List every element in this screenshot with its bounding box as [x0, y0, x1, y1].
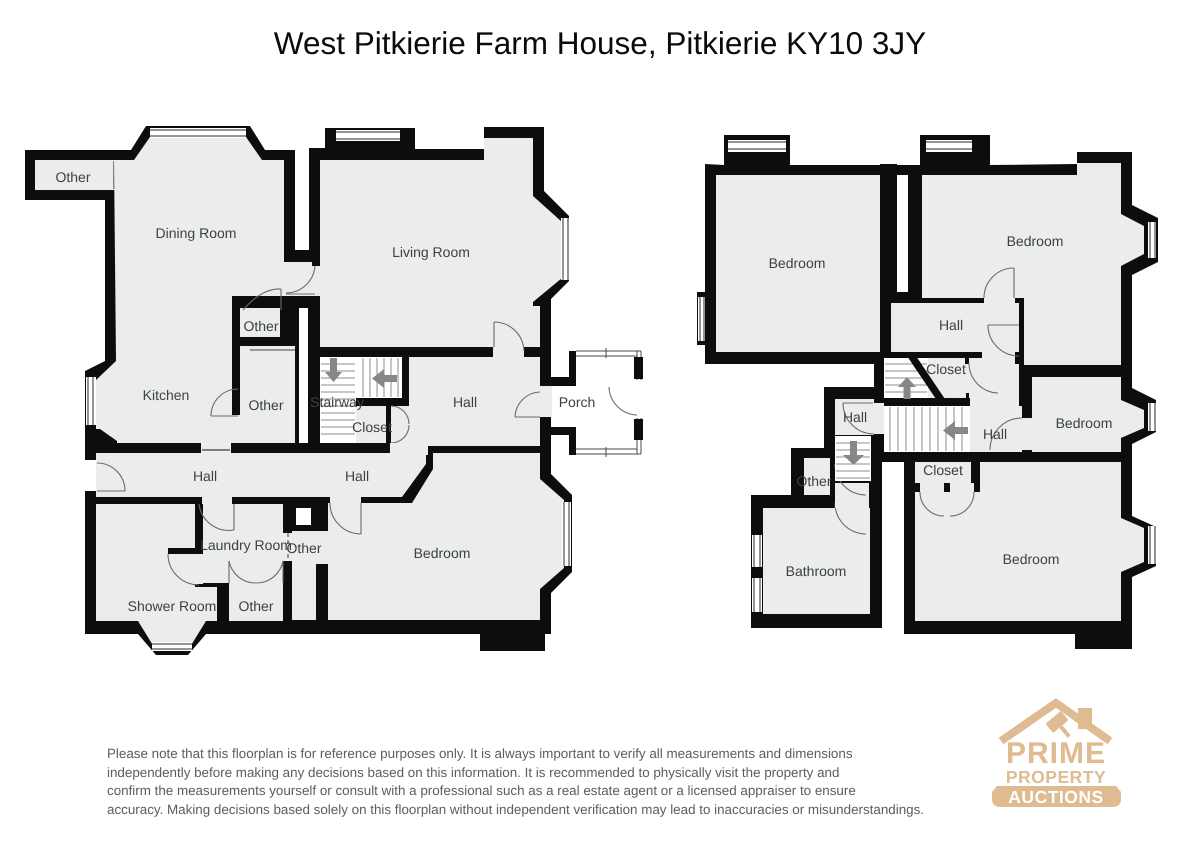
- svg-text:Hall: Hall: [939, 317, 963, 333]
- svg-text:Dining Room: Dining Room: [156, 225, 237, 241]
- svg-text:PROPERTY: PROPERTY: [1006, 767, 1106, 787]
- svg-text:Stairway: Stairway: [310, 394, 364, 410]
- svg-text:Bedroom: Bedroom: [414, 545, 471, 561]
- svg-text:Other: Other: [55, 169, 90, 185]
- svg-text:Kitchen: Kitchen: [143, 387, 190, 403]
- svg-text:Closet: Closet: [352, 419, 392, 435]
- svg-text:Bedroom: Bedroom: [1007, 233, 1064, 249]
- svg-text:Hall: Hall: [345, 468, 369, 484]
- svg-text:Hall: Hall: [193, 468, 217, 484]
- svg-text:confirm the measurements yours: confirm the measurements yourself or con…: [107, 783, 856, 798]
- svg-text:Porch: Porch: [559, 394, 596, 410]
- svg-text:Bathroom: Bathroom: [786, 563, 847, 579]
- svg-text:Laundry Room: Laundry Room: [200, 537, 292, 553]
- svg-text:Other: Other: [286, 540, 321, 556]
- svg-text:Hall: Hall: [453, 394, 477, 410]
- svg-text:Other: Other: [243, 318, 278, 334]
- svg-text:AUCTIONS: AUCTIONS: [1008, 787, 1103, 807]
- svg-text:Bedroom: Bedroom: [1003, 551, 1060, 567]
- svg-text:Other: Other: [248, 397, 283, 413]
- svg-text:Closet: Closet: [923, 462, 963, 478]
- svg-text:Shower Room: Shower Room: [128, 598, 217, 614]
- svg-text:West Pitkierie Farm House, Pit: West Pitkierie Farm House, Pitkierie KY1…: [274, 25, 926, 61]
- svg-text:Other: Other: [796, 473, 831, 489]
- svg-text:Closet: Closet: [926, 361, 966, 377]
- svg-text:accuracy. Making decisions bas: accuracy. Making decisions based solely …: [107, 802, 924, 817]
- svg-text:Bedroom: Bedroom: [1056, 415, 1113, 431]
- svg-text:Other: Other: [238, 598, 273, 614]
- svg-text:Please note that this floorpla: Please note that this floorplan is for r…: [107, 746, 853, 761]
- svg-text:Hall: Hall: [843, 409, 867, 425]
- svg-text:Hall: Hall: [983, 426, 1007, 442]
- svg-text:Bedroom: Bedroom: [769, 255, 826, 271]
- svg-text:independently before making an: independently before making any decision…: [107, 765, 839, 780]
- svg-text:Living Room: Living Room: [392, 244, 470, 260]
- svg-text:PRIME: PRIME: [1006, 737, 1106, 770]
